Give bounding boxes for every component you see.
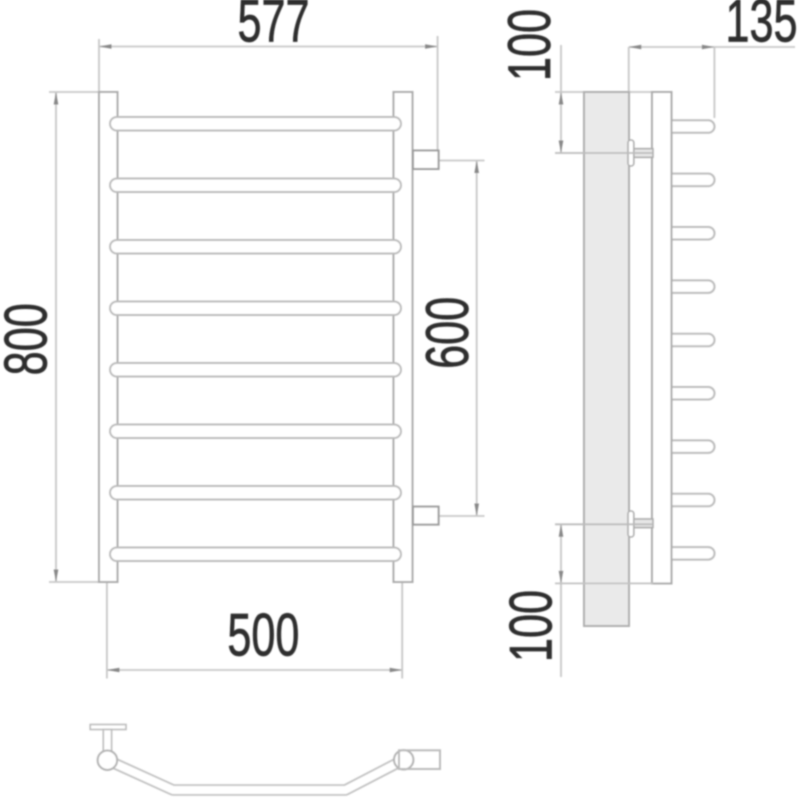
svg-text:600: 600 bbox=[415, 297, 482, 369]
svg-text:100: 100 bbox=[497, 9, 564, 81]
svg-text:500: 500 bbox=[227, 603, 299, 670]
svg-text:577: 577 bbox=[237, 0, 309, 55]
svg-text:800: 800 bbox=[0, 303, 60, 375]
svg-text:135: 135 bbox=[725, 0, 797, 55]
svg-text:100: 100 bbox=[499, 590, 566, 662]
